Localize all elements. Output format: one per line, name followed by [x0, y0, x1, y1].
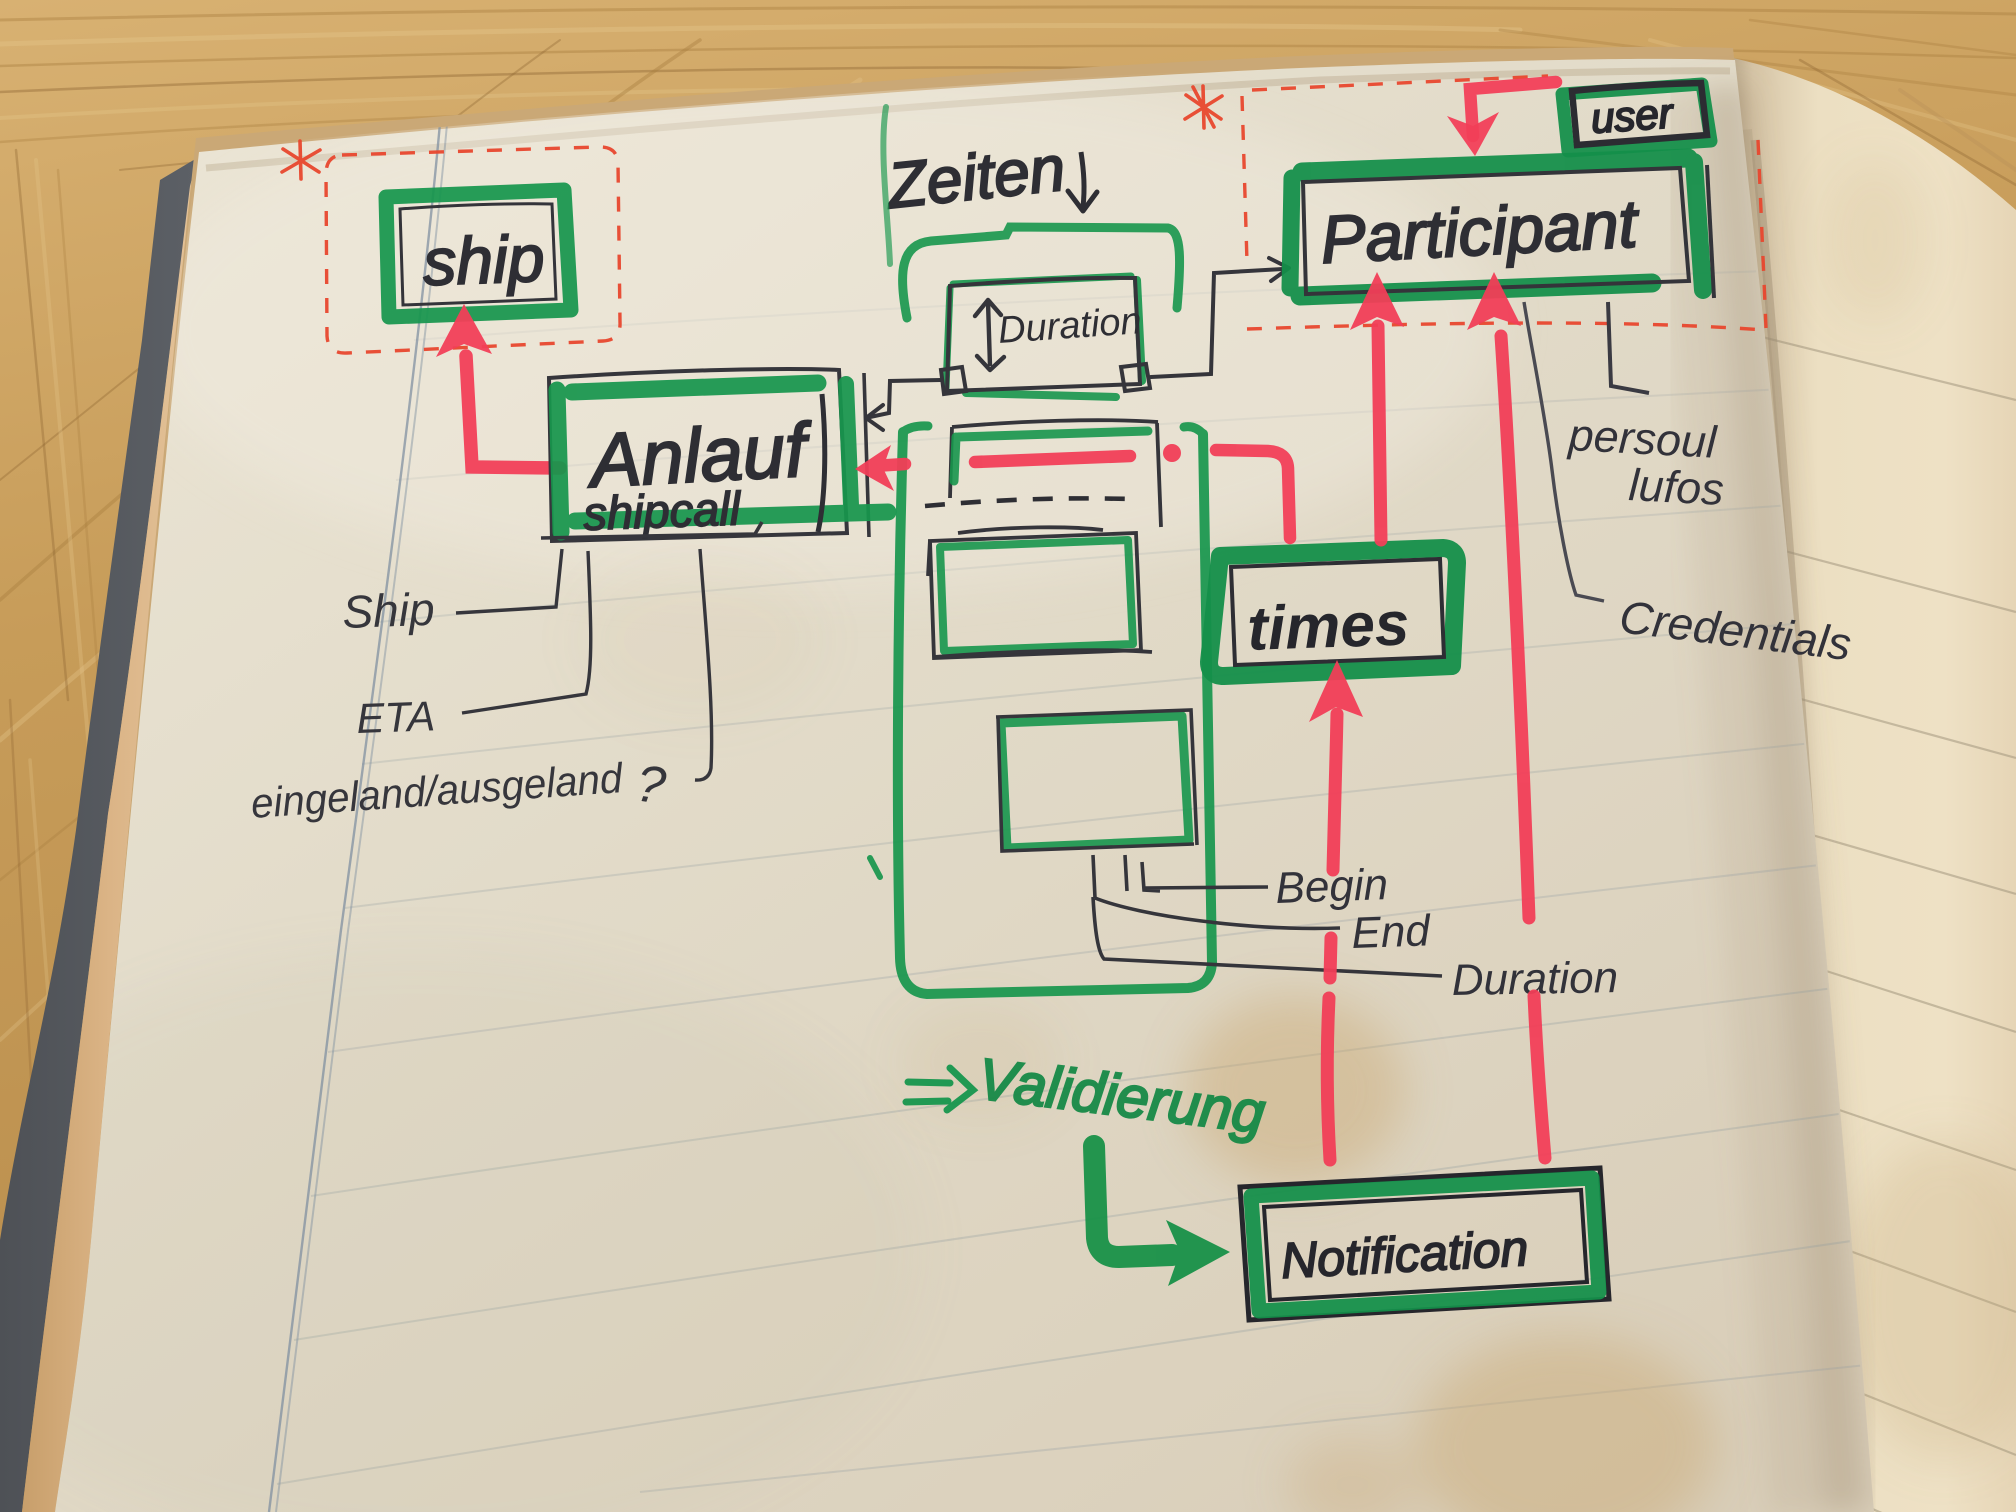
svg-text:ETA: ETA	[356, 692, 436, 742]
svg-text:user: user	[1589, 89, 1676, 142]
svg-text:Ship: Ship	[342, 583, 436, 638]
svg-text:times: times	[1246, 589, 1410, 664]
svg-text:End: End	[1351, 906, 1432, 958]
svg-text:lufos: lufos	[1627, 459, 1725, 515]
svg-text:ship: ship	[422, 221, 546, 299]
svg-text:shipcall: shipcall	[582, 482, 742, 540]
